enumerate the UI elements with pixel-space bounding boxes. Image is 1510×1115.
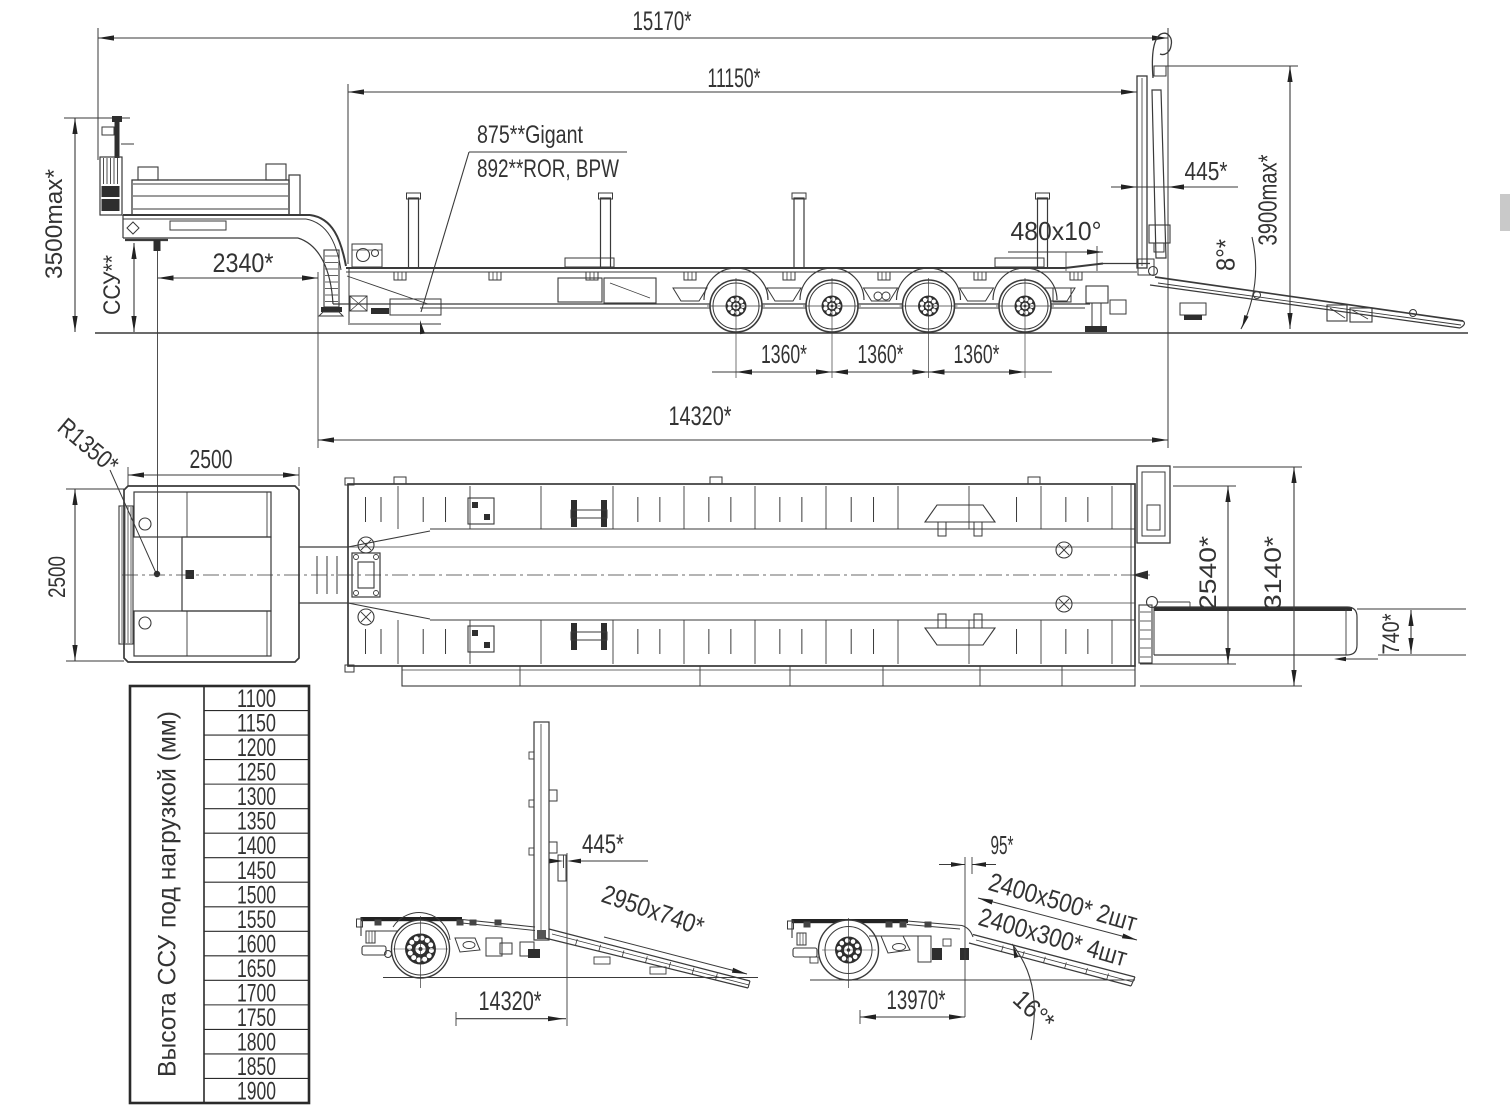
svg-text:Высота ССУ под нагрузкой (мм): Высота ССУ под нагрузкой (мм) [153, 711, 181, 1077]
svg-text:1360*: 1360* [954, 339, 1000, 369]
svg-text:1360*: 1360* [761, 339, 807, 369]
svg-text:ССУ**: ССУ** [99, 255, 126, 315]
svg-text:892**ROR, BPW: 892**ROR, BPW [477, 155, 619, 183]
svg-text:13970*: 13970* [887, 985, 946, 1015]
svg-text:14320*: 14320* [669, 401, 732, 431]
svg-text:2500: 2500 [44, 556, 71, 598]
svg-text:480x10°: 480x10° [1011, 216, 1102, 246]
svg-text:8°*: 8°* [1211, 239, 1241, 271]
svg-text:R1350*: R1350* [52, 413, 124, 480]
svg-text:3900max*: 3900max* [1253, 155, 1283, 246]
svg-text:1900: 1900 [237, 1078, 276, 1106]
svg-text:14320*: 14320* [479, 986, 542, 1016]
svg-text:2340*: 2340* [213, 248, 274, 278]
svg-text:875**Gigant: 875**Gigant [477, 121, 583, 149]
svg-text:740*: 740* [1378, 614, 1405, 655]
svg-text:445*: 445* [1185, 156, 1228, 186]
svg-text:3140*: 3140* [1260, 536, 1287, 610]
svg-text:2950x740*: 2950x740* [598, 879, 708, 942]
svg-text:2540*: 2540* [1195, 536, 1222, 610]
svg-text:95*: 95* [991, 830, 1014, 860]
svg-text:445*: 445* [582, 829, 624, 859]
svg-text:1360*: 1360* [858, 339, 904, 369]
svg-text:2500: 2500 [190, 444, 233, 474]
svg-text:3500max*: 3500max* [41, 169, 68, 279]
svg-text:15170*: 15170* [633, 6, 692, 36]
svg-text:11150*: 11150* [708, 63, 761, 93]
